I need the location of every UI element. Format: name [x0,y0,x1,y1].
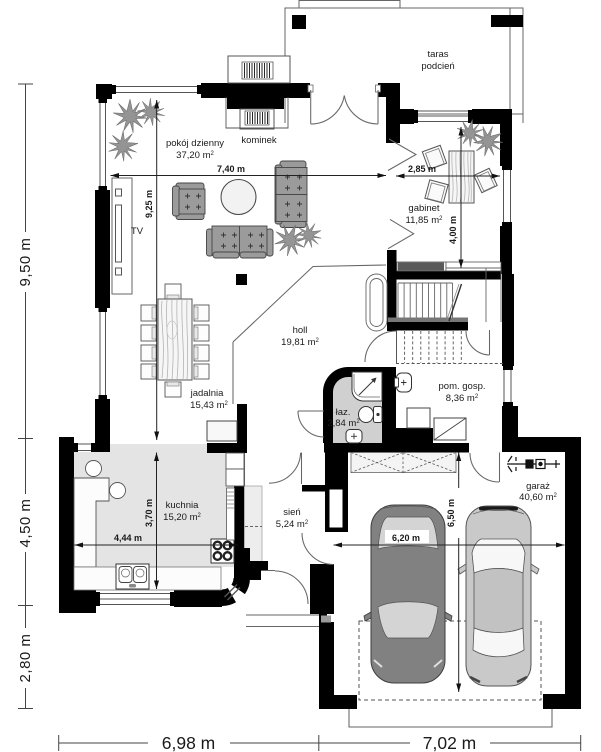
svg-text:2,80 m: 2,80 m [17,634,34,683]
svg-text:kuchnia: kuchnia [166,500,199,511]
svg-text:3,70 m: 3,70 m [144,499,154,527]
svg-text:pokój dzienny: pokój dzienny [166,138,224,149]
svg-text:40,60 m2: 40,60 m2 [519,492,557,503]
svg-text:kominek: kominek [241,135,277,146]
svg-text:9,25 m: 9,25 m [144,190,154,218]
svg-text:podcień: podcień [421,61,454,72]
svg-text:jadalnia: jadalnia [190,388,224,399]
svg-text:6,98 m: 6,98 m [162,733,216,752]
svg-text:2,85 m: 2,85 m [408,164,436,174]
svg-text:sień: sień [283,507,300,518]
svg-text:taras: taras [427,49,448,60]
svg-text:pom. gosp.: pom. gosp. [439,381,486,392]
svg-text:TV: TV [131,226,144,237]
svg-text:łaz.: łaz. [336,407,351,418]
svg-text:2,84 m2: 2,84 m2 [327,418,360,429]
svg-text:4,50 m: 4,50 m [17,499,34,548]
svg-text:37,20 m2: 37,20 m2 [176,150,214,161]
svg-text:6,20 m: 6,20 m [392,533,420,543]
svg-text:4,44 m: 4,44 m [114,533,142,543]
svg-text:7,02 m: 7,02 m [423,733,477,752]
svg-text:15,20 m2: 15,20 m2 [163,512,201,523]
svg-text:19,81 m2: 19,81 m2 [281,337,319,348]
svg-text:holl: holl [293,325,308,336]
svg-text:11,85 m2: 11,85 m2 [406,215,444,226]
svg-text:garaż: garaż [526,481,550,492]
svg-text:gabinet: gabinet [408,203,440,214]
svg-text:7,40 m: 7,40 m [217,164,245,174]
svg-text:4,00 m: 4,00 m [448,216,458,244]
svg-text:9,50 m: 9,50 m [17,238,34,287]
svg-text:5,24 m2: 5,24 m2 [276,519,309,530]
svg-text:8,36 m2: 8,36 m2 [446,393,479,404]
svg-text:6,50 m: 6,50 m [446,499,456,527]
svg-text:15,43 m2: 15,43 m2 [190,400,228,411]
